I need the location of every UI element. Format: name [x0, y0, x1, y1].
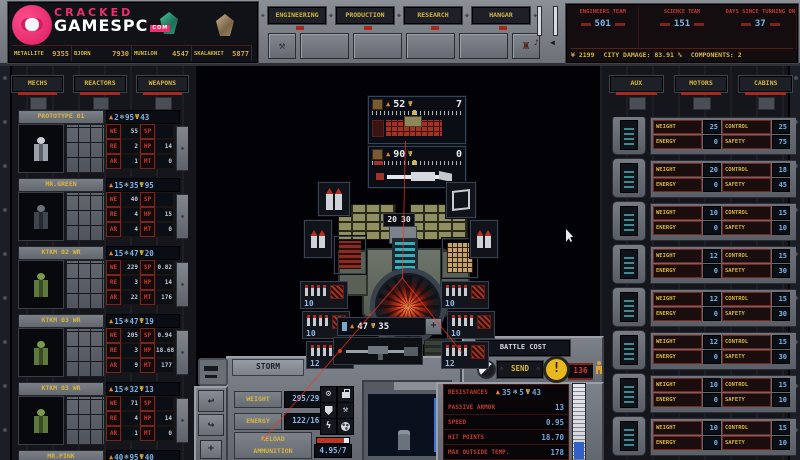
heat-icon: ▲	[109, 454, 113, 460]
stat-label-sp: SP	[140, 396, 155, 411]
cabin-item[interactable]: WEIGHT 10 CONTROL 15 ENERGY 0 SAFETY 10	[612, 203, 796, 237]
stat-label-ar: AR	[106, 154, 121, 169]
heat-value: 2	[114, 113, 119, 122]
frost-value: 95	[129, 453, 138, 460]
cabin-icon[interactable]	[612, 373, 646, 413]
weight-value: 10	[703, 421, 721, 435]
right-panel-tab[interactable]: MOTORS	[675, 76, 728, 92]
team-cell: ENGINEERS TEAM 501	[567, 7, 639, 49]
cabin-item[interactable]: WEIGHT 20 CONTROL 18 ENERGY 0 SAFETY 45	[612, 160, 796, 194]
resource-name: MUNILON	[134, 51, 157, 57]
cabin-stats: WEIGHT 10 CONTROL 15 ENERGY 0 SAFETY 10	[650, 418, 796, 456]
stat-value-sp: 0.82	[155, 260, 174, 275]
weight-label: WEIGHT	[653, 335, 702, 349]
move-button[interactable]: +	[200, 440, 222, 459]
mech-resistances: ▲ 15 ❄ 47 Ψ 20	[106, 246, 180, 260]
frost-icon: ❄	[124, 250, 128, 257]
mech-card-handle[interactable]	[176, 398, 188, 443]
stat-value-re: 4	[121, 411, 140, 426]
weapon-ammo: 7	[456, 99, 462, 110]
safety-label: SAFETY	[722, 178, 771, 192]
control-value: 25	[772, 120, 790, 134]
stat-value-re: 3	[121, 343, 140, 358]
energy-label: ENERGY	[653, 436, 702, 450]
quick-slot-button[interactable]	[459, 33, 508, 59]
acid-icon: Ψ	[408, 101, 412, 108]
heat-resist-value: 35	[502, 388, 511, 397]
mech-card-handle[interactable]	[176, 262, 188, 307]
mech-stat-table: WE 229 SP 0.82 RE 3 HP 14 AR 22 MT 176	[106, 260, 174, 307]
top-nav-tab[interactable]: PRODUCTION	[336, 7, 394, 24]
weight-label: WEIGHT	[653, 292, 702, 306]
mech-card[interactable]: KTKM 03 WR ▲ 15 ❄ 47 Ψ 19 WE 20	[10, 314, 188, 377]
cabin-item[interactable]: WEIGHT 12 CONTROL 15 ENERGY 0 SAFETY 30	[612, 246, 796, 280]
stat-label-ar: AR	[106, 222, 121, 237]
mech-slot-grid[interactable]	[66, 260, 105, 309]
heat-icon: ▲	[109, 318, 113, 325]
frost-icon: ❄	[120, 114, 124, 121]
decor-bar	[581, 23, 591, 26]
mech-resistances: ▲ 15 ❄ 47 Ψ 19	[106, 314, 180, 328]
energy-label: ENERGY	[653, 350, 702, 364]
stat-value-ar: 1	[121, 154, 140, 169]
city-stats-panel: ENGINEERS TEAM 501 SCIENCE TEAM 151	[566, 4, 798, 63]
safety-value: 75	[772, 135, 790, 149]
weight-label: WEIGHT	[653, 206, 702, 220]
top-nav-tab[interactable]: HANGAR	[472, 7, 530, 24]
weight-value: 20	[703, 163, 721, 177]
temperature-gauge	[572, 383, 586, 460]
ammo-slot-card[interactable]: 10	[447, 311, 495, 339]
control-value: 15	[772, 335, 790, 349]
gun-body-icon	[411, 172, 435, 181]
stat-label-re: RE	[106, 343, 121, 358]
weight-label: WEIGHT	[653, 163, 702, 177]
ammo-slot-card[interactable]: 10	[441, 281, 489, 309]
mech-resistances: ▲ 15 ❄ 32 Ψ 13	[106, 382, 180, 396]
cabin-icon[interactable]	[612, 287, 646, 327]
acid-icon: Ψ	[135, 114, 139, 121]
control-value: 15	[772, 421, 790, 435]
heat-icon: ▲	[386, 101, 390, 108]
energy-label: ENERGY	[653, 307, 702, 321]
heat-icon: ▲	[109, 182, 113, 189]
right-panel-tab[interactable]: AUX	[610, 76, 663, 92]
heat-value: 15	[114, 385, 123, 394]
stat-label-hp: HP	[140, 275, 155, 290]
team-value-row: 37	[725, 19, 796, 29]
safety-value: 30	[772, 350, 790, 364]
control-label: CONTROL	[722, 163, 771, 177]
stat-label-we: WE	[106, 396, 121, 411]
team-value-row: 501	[567, 19, 638, 29]
ammo-box-icon	[372, 99, 383, 110]
ammo-crate-icon	[404, 116, 422, 127]
send-button[interactable]: SEND	[497, 361, 543, 378]
heat-icon: ▲	[109, 114, 113, 121]
mech-card[interactable]: MR.PINK ▲ 40 ❄ 95 Ψ 40 WE	[10, 450, 188, 460]
resource-cell: BJORN 7930	[72, 46, 132, 61]
mech-name[interactable]: KTKM 03 WR	[18, 314, 104, 328]
team-value-row: 151	[639, 19, 724, 29]
bullets-icon	[452, 315, 476, 326]
top-nav-tab[interactable]: RESEARCH	[404, 7, 462, 24]
frost-value: 35	[129, 181, 138, 190]
stat-label-hp: HP	[140, 139, 155, 154]
frost-icon: ❄	[124, 318, 128, 325]
weight-label: WEIGHT	[653, 249, 702, 263]
team-cell: DAYS SINCE TURNING ON 37	[725, 7, 797, 49]
bag-icon	[342, 392, 350, 398]
gun-receiver-icon	[368, 346, 388, 354]
mech-list: PROTOTYPE 01 ▲ 2 ❄ 95 Ψ 43 WE 5	[10, 110, 188, 460]
stat-label-mt: MT	[140, 358, 155, 373]
missile-slot-card[interactable]	[318, 182, 350, 216]
decor-bar	[770, 23, 780, 26]
container-slot-card[interactable]	[446, 182, 476, 218]
wrench-icon: ⚒	[343, 406, 348, 415]
heat-icon: ▲	[386, 151, 390, 158]
stat-label-sp: SP	[140, 192, 155, 207]
acid-value: 20	[145, 249, 154, 258]
stat-label-ar: AR	[106, 358, 121, 373]
tool-bag-button[interactable]	[337, 386, 354, 403]
cabin-stats: WEIGHT 12 CONTROL 15 ENERGY 0 SAFETY 30	[650, 332, 796, 370]
mech-card-handle[interactable]	[176, 126, 188, 171]
mini-mech-sprite	[398, 430, 410, 450]
tool-energy-button[interactable]: ϟ	[320, 418, 337, 435]
mech-stat-table: WE 40 SP RE 4 HP 15 AR 4 MT 0	[106, 192, 174, 239]
mech-name[interactable]: MR.GREEN	[18, 178, 104, 192]
control-label: CONTROL	[722, 335, 771, 349]
pilot-icon	[342, 322, 347, 331]
weapon-damage: 52	[393, 99, 405, 110]
mech-portrait	[18, 192, 64, 241]
tool-shield-button[interactable]	[320, 402, 337, 419]
left-panel-tab[interactable]: MECHS	[12, 76, 63, 92]
heat-value: 15	[114, 249, 123, 258]
weapon-card-stats: ▲ 52 Ψ 7	[369, 97, 465, 111]
cabin-stats: WEIGHT 10 CONTROL 15 ENERGY 0 SAFETY 10	[650, 375, 796, 413]
cabin-item[interactable]: WEIGHT 25 CONTROL 25 ENERGY 0 SAFETY 75	[612, 117, 796, 151]
stat-value-sp	[155, 396, 174, 411]
top-nav-tab[interactable]: ENGINEERING	[268, 7, 326, 24]
stat-value-ar: 22	[121, 290, 140, 305]
cabin-item[interactable]: WEIGHT 12 CONTROL 15 ENERGY 0 SAFETY 30	[612, 289, 796, 323]
watermark-brand: GAMESPC	[54, 16, 148, 35]
stat-value-hp: 15	[155, 207, 174, 222]
control-label: CONTROL	[722, 206, 771, 220]
reload-progress-bar	[316, 437, 350, 444]
mech-sprite	[34, 409, 48, 433]
ammo-slot-card[interactable]: 10	[300, 281, 348, 309]
missile-slot-card[interactable]	[304, 220, 332, 258]
heat-icon: ▲	[109, 250, 113, 257]
weapon-sprite	[372, 117, 462, 139]
ammo-box-icon	[372, 149, 383, 160]
mech-resistances: ▲ 2 ❄ 95 Ψ 43	[106, 110, 180, 124]
stat-value-sp: 0.94	[155, 328, 174, 343]
mech-card[interactable]: MR.GREEN ▲ 15 ❄ 35 Ψ 95 WE 40	[10, 178, 188, 241]
undo-button[interactable]: ↩	[198, 390, 224, 412]
energy-label: ENERGY	[653, 135, 702, 149]
acid-icon: Ψ	[140, 454, 144, 460]
stat-value-sp	[155, 124, 174, 139]
ammo-count: 12	[310, 359, 320, 368]
gun-stock-icon	[439, 171, 452, 182]
mech-resistances: ▲ 15 ❄ 35 Ψ 95	[106, 178, 180, 192]
control-label: CONTROL	[722, 120, 771, 134]
mech-card-handle[interactable]	[176, 330, 188, 375]
cabin-stats: WEIGHT 12 CONTROL 15 ENERGY 0 SAFETY 30	[650, 246, 796, 284]
acid-value: 95	[145, 181, 154, 190]
preview-viewport[interactable]	[368, 394, 442, 456]
music-volume-slider[interactable]	[537, 6, 542, 36]
cabin-stats: WEIGHT 20 CONTROL 18 ENERGY 0 SAFETY 45	[650, 160, 796, 198]
acid-value: 43	[140, 113, 149, 122]
weight-label: WEIGHT	[234, 391, 282, 408]
resource-name: METALLITE	[14, 51, 44, 57]
quick-slot-button[interactable]	[406, 33, 455, 59]
stat-label-mt: MT	[140, 154, 155, 169]
stat-label-sp: SP	[140, 328, 155, 343]
control-value: 15	[772, 206, 790, 220]
energy-value: 0	[703, 178, 721, 192]
missile-icon	[311, 230, 317, 248]
stat-value-ar: 4	[121, 222, 140, 237]
acid-icon: Ψ	[371, 323, 375, 330]
frost-value: 95	[125, 113, 134, 122]
safety-value: 10	[772, 436, 790, 450]
stat-value-we: 40	[121, 192, 140, 207]
mech-name[interactable]: KTKM 03 WR	[18, 382, 104, 396]
energy-label: ENERGY	[653, 393, 702, 407]
missile-icon	[335, 188, 342, 210]
ammo-count: 10	[451, 329, 461, 338]
top-nav-ticks	[268, 26, 530, 31]
control-value: 15	[772, 378, 790, 392]
stat-label-ar: AR	[106, 426, 121, 441]
battle-cost-title: BATTLE COST	[476, 340, 570, 356]
stat-value-hp: 14	[155, 275, 174, 290]
control-label: CONTROL	[722, 292, 771, 306]
mech-card-header: KTKM 03 WR ▲ 15 ❄ 47 Ψ 19	[10, 314, 188, 327]
redo-icon: ↪	[208, 418, 215, 431]
reload-label-line1: RELOAD	[235, 433, 311, 445]
frost-icon: ❄	[513, 389, 517, 396]
stat-label-we: WE	[106, 328, 121, 343]
quick-slot-button[interactable]	[353, 33, 402, 59]
heat-icon: ▲	[350, 323, 354, 330]
resource-value: 5877	[232, 50, 249, 58]
missile-slot-card[interactable]	[470, 220, 498, 258]
mech-card[interactable]: KTKM 02 WR ▲ 15 ❄ 47 Ψ 20 WE 22	[10, 246, 188, 309]
energy-value: 0	[703, 350, 721, 364]
cabin-icon[interactable]	[612, 330, 646, 370]
mech-card-handle[interactable]	[176, 194, 188, 239]
status-row: ¥ 2199 CITY DAMAGE: 83.91 % COMPONENTS: …	[571, 48, 793, 59]
mech-name[interactable]: MR.PINK	[18, 450, 104, 460]
watermark: CRACKED GAMESPCCOM	[54, 7, 170, 34]
mech-card-body: WE 229 SP 0.82 RE 3 HP 14 AR 22 MT 176	[10, 260, 188, 309]
cabin-icon[interactable]	[612, 416, 646, 456]
safety-label: SAFETY	[722, 436, 771, 450]
safety-value: 30	[772, 307, 790, 321]
redo-button[interactable]: ↪	[198, 414, 224, 436]
mech-stat-table: WE 55 SP RE 2 HP 14 AR 1 MT 0	[106, 124, 174, 171]
battle-stat-value: 18.70	[541, 433, 564, 442]
team-row: ENGINEERS TEAM 501 SCIENCE TEAM 151	[567, 7, 797, 49]
robot-head-icon	[198, 358, 228, 386]
safety-value: 45	[772, 178, 790, 192]
stat-value-re: 2	[121, 139, 140, 154]
cabin-icon[interactable]	[612, 117, 646, 155]
tool-paint-button[interactable]	[337, 418, 354, 435]
mech-card[interactable]: KTKM 03 WR ▲ 15 ❄ 32 Ψ 13 WE 71	[10, 382, 188, 445]
battle-stat-value: 0.95	[546, 418, 564, 427]
mech-name[interactable]: PROTOTYPE 01	[18, 110, 104, 124]
frost-resist-value: 5	[519, 388, 524, 397]
cabin-item[interactable]: WEIGHT 12 CONTROL 15 ENERGY 0 SAFETY 30	[612, 332, 796, 366]
left-panel-tab[interactable]: WEAPONS	[137, 76, 188, 92]
game-screen: METALLITE 9355 BJORN 7930 MUNILON 4547 S…	[0, 0, 800, 460]
battle-stat-label: HIT POINTS	[448, 434, 484, 441]
stat-label-re: RE	[106, 207, 121, 222]
hatch-box-icon	[330, 285, 344, 299]
resource-value: 7930	[112, 50, 129, 58]
frost-value: 47	[129, 249, 138, 258]
mech-slot-grid[interactable]	[66, 192, 105, 241]
acid-resist-value: 43	[532, 388, 541, 397]
left-panel-tab[interactable]: REACTORS	[74, 76, 125, 92]
weight-label: WEIGHT	[653, 120, 702, 134]
crew-icon	[595, 361, 603, 375]
stat-value-we: 71	[121, 396, 140, 411]
safety-label: SAFETY	[722, 135, 771, 149]
cabin-icon[interactable]	[612, 201, 646, 241]
stat-label-re: RE	[106, 411, 121, 426]
cabin-item[interactable]: WEIGHT 10 CONTROL 15 ENERGY 0 SAFETY 10	[612, 418, 796, 452]
mech-name-field[interactable]: STORM	[232, 359, 304, 376]
heat-value: 15	[114, 181, 123, 190]
control-value: 18	[772, 163, 790, 177]
stat-value-re: 4	[121, 207, 140, 222]
ammo-count: 10	[306, 329, 316, 338]
cabin-icon[interactable]	[612, 158, 646, 198]
mech-card-body: WE 55 SP RE 2 HP 14 AR 1 MT 0	[10, 124, 188, 173]
acid-value: 40	[145, 453, 154, 460]
mech-sprite	[34, 273, 48, 297]
stat-label-mt: MT	[140, 426, 155, 441]
mech-resistances: ▲ 40 ❄ 95 Ψ 40	[106, 450, 180, 460]
wing-counter: 20 30	[383, 213, 415, 227]
selected-acid-value: 35	[378, 322, 389, 332]
energy-value: 0	[703, 393, 721, 407]
battle-stat-label: PASSIVE ARMOR	[448, 404, 495, 411]
quick-slot-button[interactable]	[300, 33, 349, 59]
reload-ammunition-button[interactable]: RELOAD AMMUNITION	[234, 432, 312, 459]
mech-slot-grid[interactable]	[66, 396, 105, 445]
missile-icon	[319, 230, 325, 248]
decor-bar	[615, 23, 625, 26]
gun-part-icon	[376, 173, 384, 180]
stat-label-re: RE	[106, 139, 121, 154]
mech-card-header: KTKM 02 WR ▲ 15 ❄ 47 Ψ 20	[10, 246, 188, 259]
stat-label-hp: HP	[140, 411, 155, 426]
warning-icon[interactable]: !	[543, 356, 570, 383]
mech-name[interactable]: KTKM 02 WR	[18, 246, 104, 260]
coil-slot-card[interactable]	[334, 236, 366, 274]
stat-value-we: 229	[121, 260, 140, 275]
gun-stock-icon	[404, 347, 418, 356]
money-value: ¥ 2199	[571, 51, 594, 59]
tool-wrench-button[interactable]: ⚒	[337, 402, 354, 419]
mech-card-body: WE 40 SP RE 4 HP 15 AR 4 MT 0	[10, 192, 188, 241]
cabin-icon[interactable]	[612, 244, 646, 284]
control-label: CONTROL	[722, 378, 771, 392]
left-panel-tabs: MECHS REACTORS WEAPONS	[12, 76, 188, 92]
stat-label-we: WE	[106, 124, 121, 139]
right-panel-tab[interactable]: CABINS	[739, 76, 792, 92]
repair-tools-button[interactable]: ⚒	[268, 33, 296, 59]
battle-stat-value: 178	[550, 448, 564, 457]
mech-slot-grid[interactable]	[66, 124, 105, 173]
right-panel-tabs: AUX MOTORS CABINS	[610, 76, 792, 92]
heat-value: 40	[114, 453, 123, 460]
frost-icon: ❄	[124, 454, 128, 460]
frost-value: 47	[129, 317, 138, 326]
ammo-slot-card[interactable]: 12	[441, 341, 489, 369]
energy-value: 0	[703, 221, 721, 235]
heat-icon: ▲	[496, 389, 500, 396]
stat-value-re: 3	[121, 275, 140, 290]
ammo-count: 12	[445, 359, 455, 368]
mech-stat-table: WE 205 SP 0.94 RE 3 HP 18.68 AR 9 MT 177	[106, 328, 174, 375]
resource-row: METALLITE 9355 BJORN 7930 MUNILON 4547 S…	[12, 45, 252, 61]
mech-portrait	[18, 396, 64, 445]
frost-icon: ❄	[124, 386, 128, 393]
weight-label: WEIGHT	[653, 378, 702, 392]
safety-label: SAFETY	[722, 264, 771, 278]
tool-gear-button[interactable]: ⚙	[320, 386, 337, 403]
sound-volume-slider[interactable]	[553, 6, 558, 36]
invader-icon: Ж	[523, 41, 529, 52]
watermark-badge: COM	[150, 25, 170, 32]
mech-card[interactable]: PROTOTYPE 01 ▲ 2 ❄ 95 Ψ 43 WE 5	[10, 110, 188, 173]
wing-count-left: 20	[387, 214, 397, 226]
stat-label-sp: SP	[140, 260, 155, 275]
acid-icon: Ψ	[526, 389, 530, 396]
weapon-tooltip-card[interactable]: ▲ 52 Ψ 7	[368, 96, 466, 144]
stat-label-mt: MT	[140, 222, 155, 237]
safety-value: 30	[772, 264, 790, 278]
battle-stat-label: SPEED	[448, 419, 466, 426]
mech-card-body: WE 205 SP 0.94 RE 3 HP 18.68 AR 9 MT 177	[10, 328, 188, 377]
cabin-item[interactable]: WEIGHT 10 CONTROL 15 ENERGY 0 SAFETY 10	[612, 375, 796, 409]
mech-slot-grid[interactable]	[66, 328, 105, 377]
safety-label: SAFETY	[722, 221, 771, 235]
mech-sprite	[34, 137, 48, 161]
stat-value-hp: 18.68	[155, 343, 174, 358]
stat-value-hp: 14	[155, 411, 174, 426]
acid-icon: Ψ	[408, 151, 412, 158]
reload-label-line2: AMMUNITION	[235, 445, 311, 457]
stat-value-mt: 0	[155, 154, 174, 169]
stat-value-mt: 0	[155, 426, 174, 441]
watermark-logo-icon	[12, 5, 52, 45]
stat-value-ar: 9	[121, 358, 140, 373]
frost-icon: ❄	[124, 182, 128, 189]
